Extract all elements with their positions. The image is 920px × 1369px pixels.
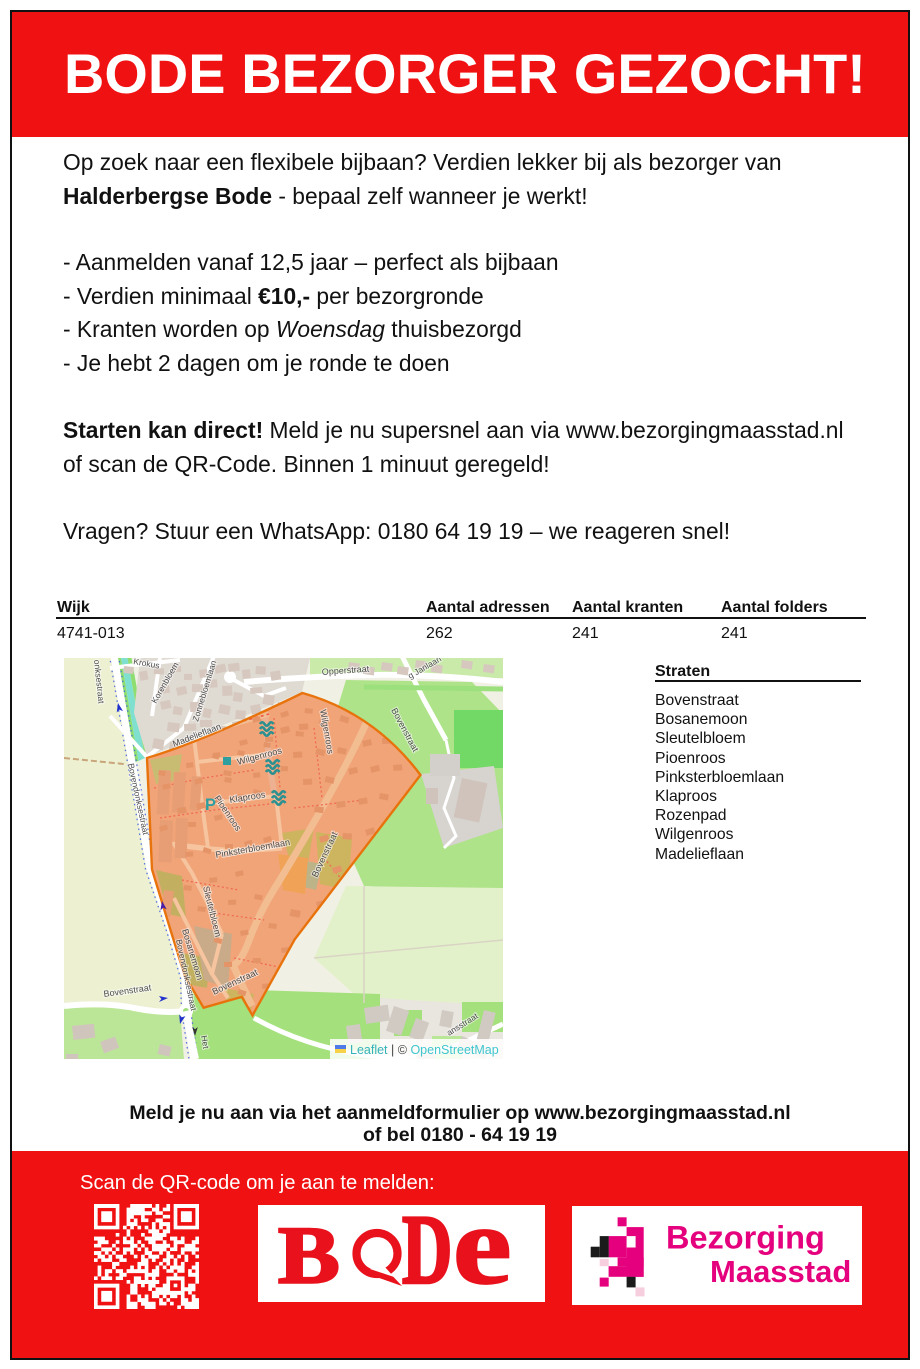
svg-text:Maasstad: Maasstad	[710, 1254, 851, 1289]
svg-text:D: D	[402, 1205, 453, 1302]
svg-text:Bezorging: Bezorging	[666, 1219, 825, 1255]
svg-text:Leaflet | © OpenStreetMap: Leaflet | © OpenStreetMap	[350, 1043, 499, 1057]
svg-text:e: e	[453, 1205, 512, 1302]
svg-text:B: B	[278, 1209, 340, 1300]
